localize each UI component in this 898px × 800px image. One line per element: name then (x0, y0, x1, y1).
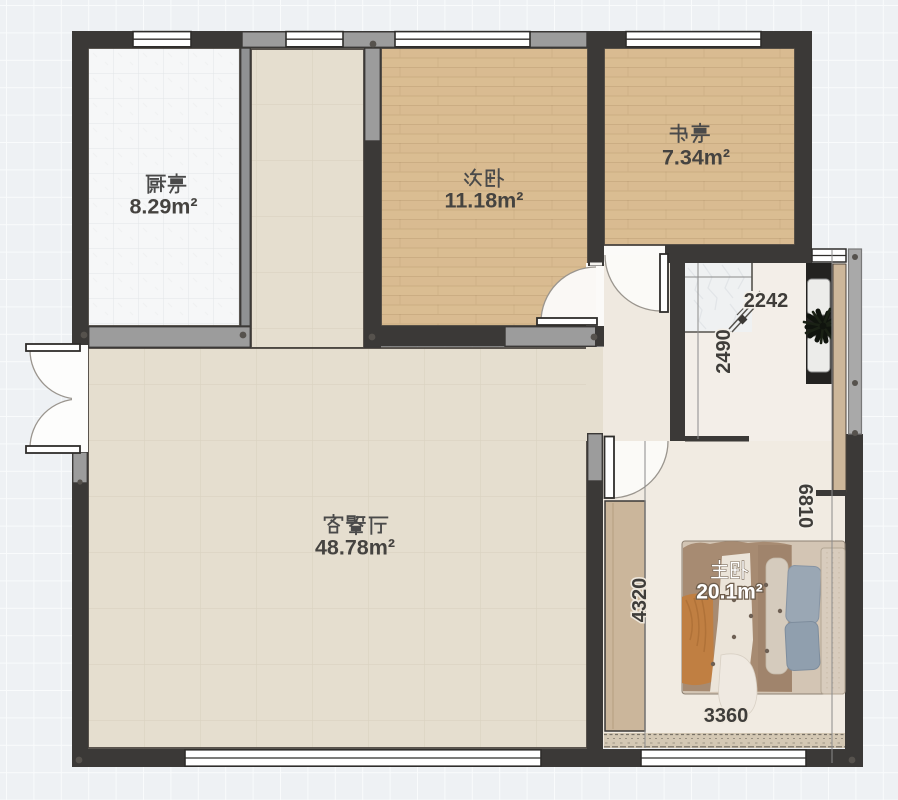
svg-text:2490: 2490 (713, 329, 735, 374)
svg-text:4320: 4320 (629, 578, 651, 623)
svg-text:6810: 6810 (794, 484, 816, 529)
svg-text:3360: 3360 (704, 705, 749, 727)
svg-text:8.29m²: 8.29m² (129, 195, 197, 219)
svg-text:20.1m²: 20.1m² (696, 581, 763, 604)
svg-text:11.18m²: 11.18m² (445, 189, 524, 213)
svg-text:48.78m²: 48.78m² (315, 536, 395, 560)
svg-text:7.34m²: 7.34m² (662, 146, 730, 170)
svg-text:2242: 2242 (744, 290, 789, 312)
